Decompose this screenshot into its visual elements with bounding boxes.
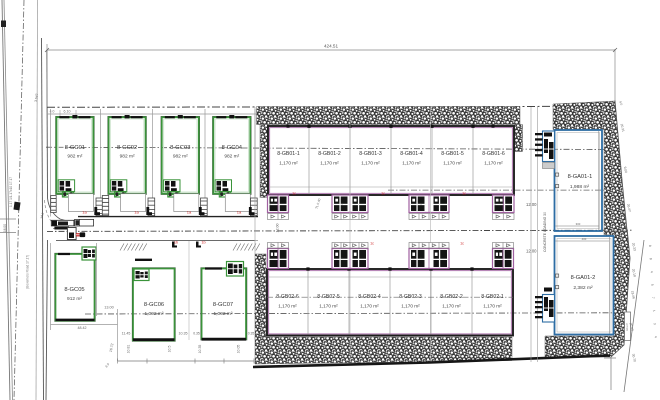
svg-text:10.35: 10.35 [179,332,188,336]
svg-text:10.5: 10.5 [168,346,172,353]
svg-text:8-GB01-2: 8-GB01-2 [318,151,341,157]
svg-text:8-GA01-2: 8-GA01-2 [571,275,596,281]
svg-text:×: × [341,257,343,261]
svg-text:1,170 m²: 1,170 m² [402,160,421,165]
svg-text:1c: 1c [381,192,385,196]
svg-text:6.10: 6.10 [64,110,71,114]
svg-text:8-GB01-3: 8-GB01-3 [359,151,382,157]
svg-text:982 m²: 982 m² [173,154,188,160]
svg-text:1c: 1c [292,192,296,196]
svg-text:×: × [269,202,271,206]
svg-text:1,170 m²: 1,170 m² [401,303,420,308]
svg-text:12.00: 12.00 [526,202,537,207]
svg-text:8-GC02: 8-GC02 [117,145,137,151]
svg-text:8-GB01-5: 8-GB01-5 [441,151,464,157]
svg-text:1a: 1a [134,210,139,215]
svg-text:1,170 m²: 1,170 m² [483,303,502,308]
svg-text:CONCRETE LOADING 30: CONCRETE LOADING 30 [543,212,547,252]
svg-text:8-GB02-1: 8-GB02-1 [481,294,504,300]
svg-text:×: × [269,257,271,261]
svg-text:8-GB01-6: 8-GB01-6 [482,151,505,157]
svg-text:8-GC06: 8-GC06 [144,302,164,308]
svg-text:×: × [494,202,496,206]
svg-text:1,170 m²: 1,170 m² [484,160,503,165]
svg-text:982 m²: 982 m² [120,154,135,160]
svg-text:10.05: 10.05 [237,345,241,354]
svg-text:13.00: 13.00 [104,306,114,310]
svg-text:16.00: 16.00 [3,224,7,232]
svg-text:8-GB01-4: 8-GB01-4 [400,151,423,157]
svg-text:8-GB02-4: 8-GB02-4 [358,294,381,300]
svg-text:8-GB02-3: 8-GB02-3 [399,294,422,300]
svg-text:1,170 m²: 1,170 m² [442,303,461,308]
svg-text:1,170 m²: 1,170 m² [443,160,462,165]
svg-text:400: 400 [582,237,587,241]
svg-text:424.51: 424.51 [324,44,338,49]
svg-text:1c: 1c [460,242,464,246]
svg-text:1,170 m²: 1,170 m² [360,303,379,308]
svg-text:11.45: 11.45 [122,332,131,336]
svg-text:×: × [420,202,422,206]
svg-text:300: 300 [576,222,581,226]
svg-text:10.35: 10.35 [198,345,202,354]
svg-text:1a: 1a [237,210,242,215]
svg-text:8-GB02-2: 8-GB02-2 [440,294,463,300]
svg-text:1,092 m²: 1,092 m² [214,311,233,317]
svg-text:8-GC01: 8-GC01 [65,145,85,151]
svg-text:1b: 1b [174,241,178,245]
svg-text:912 m²: 912 m² [67,296,82,302]
svg-text:8-GB01-1: 8-GB01-1 [277,151,300,157]
svg-text:GULLY: GULLY [626,323,629,331]
svg-text:1,170 m²: 1,170 m² [320,160,339,165]
svg-text:1a: 1a [82,210,87,215]
svg-text:1,092 m²: 1,092 m² [145,311,164,317]
svg-text:(Governors Road 17.17): (Governors Road 17.17) [26,255,30,289]
svg-text:1,988 m²: 1,988 m² [570,184,590,190]
svg-text:8-GC03: 8-GC03 [170,145,190,151]
svg-text:1.17 1/1.17x10 17.17: 1.17 1/1.17x10 17.17 [9,177,13,207]
svg-text:1c: 1c [462,192,466,196]
svg-text:48.42: 48.42 [78,326,87,330]
svg-text:×: × [341,202,343,206]
svg-text:1,170 m²: 1,170 m² [279,160,298,165]
svg-text:1,170 m²: 1,170 m² [319,303,338,308]
svg-text:8-GA01-1: 8-GA01-1 [568,174,593,180]
svg-text:0.35: 0.35 [248,332,255,336]
svg-text:8-GC05: 8-GC05 [64,287,84,293]
svg-text:8-GB02-5: 8-GB02-5 [317,294,340,300]
svg-text:×: × [420,257,422,261]
svg-text:1b: 1b [201,241,205,245]
svg-text:2,382 m²: 2,382 m² [573,285,593,291]
svg-text:8-GC07: 8-GC07 [213,302,233,308]
svg-text:0.35: 0.35 [193,332,200,336]
svg-text:×: × [494,257,496,261]
svg-text:1c: 1c [370,242,374,246]
svg-text:982 m²: 982 m² [224,154,239,160]
svg-text:10.81: 10.81 [127,345,131,354]
svg-text:1,170 m²: 1,170 m² [361,160,380,165]
svg-text:982 m²: 982 m² [67,154,82,160]
svg-text:8-GC04: 8-GC04 [222,145,243,151]
svg-text:1a: 1a [187,210,192,215]
svg-text:8-GB02-6: 8-GB02-6 [276,294,299,300]
svg-text:12.00: 12.00 [276,224,280,233]
svg-text:1,170 m²: 1,170 m² [278,303,297,308]
svg-text:12.00: 12.00 [526,249,537,254]
